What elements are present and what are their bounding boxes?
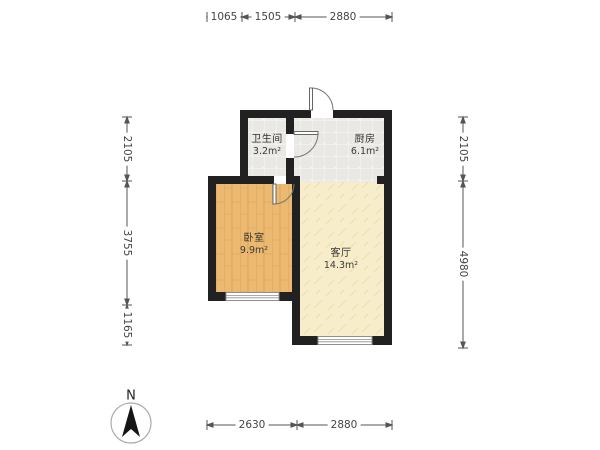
entrance-door [310, 88, 334, 110]
dim-right-1: 2105 [457, 133, 469, 166]
dim-top-2: 1505 [252, 11, 285, 23]
wall-bedroom-living-divider [292, 176, 300, 345]
wall-bedroom-bottom-right [279, 292, 300, 301]
dim-top-1: 1065 [208, 11, 241, 23]
wall-bathroom-left [240, 110, 248, 184]
entrance-door-leaf [310, 88, 313, 110]
wall-bedroom-top [208, 176, 274, 184]
living-room-window [318, 337, 372, 345]
dim-left-1: 2105 [121, 133, 133, 166]
north-compass [111, 403, 151, 443]
wall-bedroom-left [208, 176, 216, 301]
dim-bottom-2: 2880 [328, 419, 361, 431]
dim-right-2: 4980 [457, 248, 469, 281]
bathroom-floor [248, 118, 286, 176]
kitchen-floor [294, 118, 384, 182]
dim-left-2: 3755 [121, 227, 133, 260]
wall-living-bottom-right [372, 336, 392, 345]
wall-kitchen-living-stub [377, 176, 384, 184]
floorplan-canvas: 卫生间 3.2m² 厨房 6.1m² 卧室 9.9m² 客厅 14.3m² 10… [0, 0, 600, 450]
wall-right [384, 110, 392, 345]
entrance-door-arc [311, 88, 333, 110]
bedroom-window [226, 293, 279, 301]
wall-living-bottom-left [292, 336, 318, 345]
dim-left-3: 1165 [121, 309, 133, 342]
bathroom-door-leaf [294, 132, 318, 135]
wall-top-right-segment [333, 110, 392, 118]
living-room-floor [300, 182, 384, 336]
wall-bathroom-right-upper [286, 110, 294, 134]
wall-bedroom-bottom-left [208, 292, 226, 301]
wall-top-left-segment [240, 110, 311, 118]
dim-top-3: 2880 [327, 11, 360, 23]
bedroom-floor [216, 184, 292, 292]
north-label: N [126, 389, 136, 404]
floorplan-drawing [0, 0, 600, 450]
bedroom-door-leaf [273, 184, 276, 204]
dim-bottom-1: 2630 [236, 419, 269, 431]
